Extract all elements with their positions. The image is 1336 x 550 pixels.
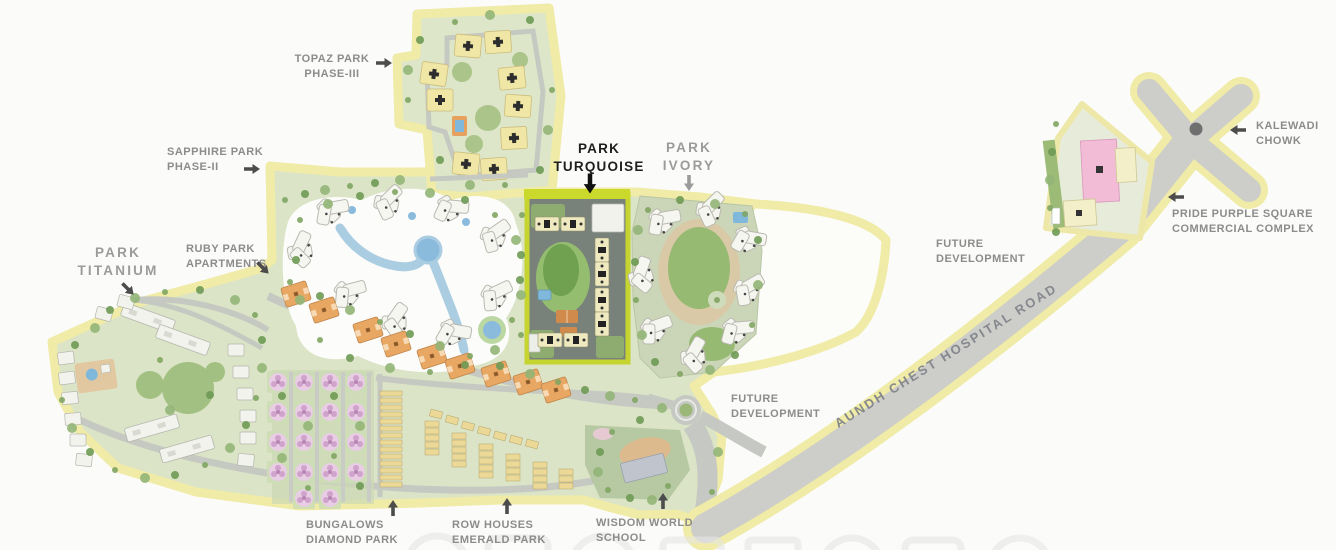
label-bungalows-diamond-park: BUNGALOWS DIAMOND PARK [306, 518, 398, 547]
label-line: BUNGALOWS [306, 518, 398, 533]
pride-purple-square-complex [1043, 104, 1152, 238]
label-line: DIAMOND PARK [306, 533, 398, 548]
label-kalewadi-chowk: KALEWADI CHOWK [1256, 119, 1319, 148]
label-line: FUTURE [936, 237, 1025, 252]
arrow-topaz-park-icon [376, 57, 392, 69]
label-line: PARK [658, 139, 720, 157]
arrow-wisdom-school-icon [657, 493, 669, 509]
label-line: KALEWADI [1256, 119, 1319, 134]
arrow-sapphire-park-icon [244, 163, 260, 175]
label-line: EMERALD PARK [452, 533, 546, 548]
master-plan-canvas: TOPAZ PARK PHASE-III SAPPHIRE PARK PHASE… [0, 0, 1336, 550]
wisdom-world-school-area [585, 425, 690, 500]
label-line: PRIDE PURPLE SQUARE [1172, 207, 1314, 222]
label-line: DEVELOPMENT [731, 407, 820, 422]
arrow-kalewadi-chowk-icon [1230, 124, 1246, 136]
arrow-pride-purple-icon [1168, 191, 1184, 203]
label-row-houses-emerald-park: ROW HOUSES EMERALD PARK [452, 518, 546, 547]
label-line: PARK [70, 244, 166, 262]
kalewadi-chowk-marker [1190, 123, 1203, 136]
label-topaz-park: TOPAZ PARK PHASE-III [288, 52, 376, 81]
label-line: TITANIUM [70, 262, 166, 280]
label-line: COMMERCIAL COMPLEX [1172, 222, 1314, 237]
label-park-ivory: PARK IVORY [658, 139, 720, 175]
label-line: FUTURE [731, 392, 820, 407]
label-park-titanium: PARK TITANIUM [70, 244, 166, 280]
arrow-bungalows-icon [387, 500, 399, 516]
label-line: PARK [551, 140, 647, 158]
arrow-park-turquoise-icon [583, 174, 598, 194]
label-line: TURQUOISE [551, 158, 647, 176]
label-future-development-south: FUTURE DEVELOPMENT [731, 392, 820, 421]
site-plan-map [0, 0, 1336, 550]
label-pride-purple-square: PRIDE PURPLE SQUARE COMMERCIAL COMPLEX [1172, 207, 1314, 236]
label-line: WISDOM WORLD [596, 516, 693, 531]
label-park-turquoise: PARK TURQUOISE [551, 140, 647, 176]
label-future-development-east: FUTURE DEVELOPMENT [936, 237, 1025, 266]
label-line: TOPAZ PARK [288, 52, 376, 67]
label-line: SAPPHIRE PARK [167, 145, 263, 160]
label-line: DEVELOPMENT [936, 252, 1025, 267]
label-wisdom-world-school: WISDOM WORLD SCHOOL [596, 516, 693, 545]
label-line: ROW HOUSES [452, 518, 546, 533]
arrow-row-houses-icon [501, 498, 513, 514]
label-line: CHOWK [1256, 134, 1319, 149]
parcel-park-turquoise [524, 189, 630, 362]
label-line: SCHOOL [596, 531, 693, 546]
label-line: RUBY PARK [186, 242, 267, 257]
label-line: IVORY [658, 157, 720, 175]
label-line: PHASE-III [288, 67, 376, 82]
arrow-park-ivory-icon [683, 175, 695, 191]
